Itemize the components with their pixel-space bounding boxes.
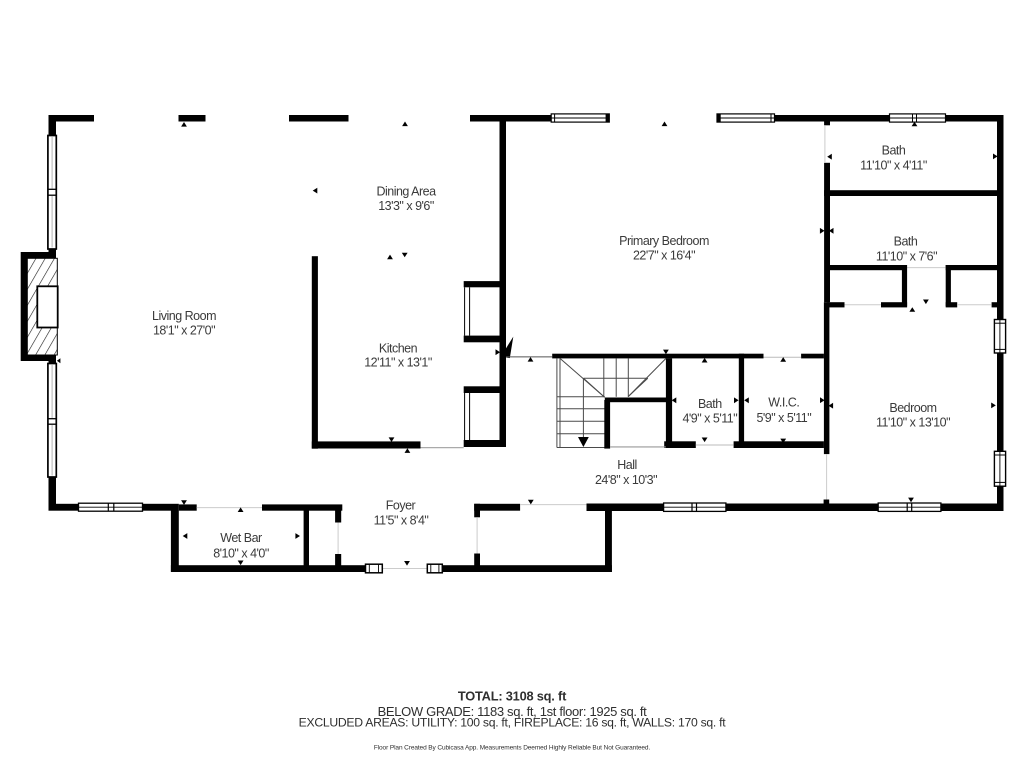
svg-text:Primary Bedroom: Primary Bedroom [619, 234, 709, 248]
svg-text:12'11" x 13'1": 12'11" x 13'1" [364, 356, 432, 370]
svg-text:24'8" x 10'3": 24'8" x 10'3" [595, 473, 657, 487]
svg-text:W.I.C.: W.I.C. [768, 396, 799, 410]
svg-text:13'3" x 9'6": 13'3" x 9'6" [378, 199, 434, 213]
svg-text:Kitchen: Kitchen [379, 342, 418, 356]
svg-text:Dining Area: Dining Area [376, 185, 436, 199]
svg-text:TOTAL: 3108 sq. ft: TOTAL: 3108 sq. ft [458, 689, 567, 704]
svg-text:Foyer: Foyer [386, 499, 416, 513]
svg-text:8'10" x 4'0": 8'10" x 4'0" [213, 546, 269, 560]
svg-text:22'7" x 16'4": 22'7" x 16'4" [633, 248, 695, 262]
svg-text:Floor Plan Created By Cubicasa: Floor Plan Created By Cubicasa App. Meas… [374, 745, 651, 752]
svg-text:11'10" x 13'10": 11'10" x 13'10" [876, 416, 950, 430]
svg-text:Living Room: Living Room [152, 309, 216, 323]
svg-text:EXCLUDED AREAS: UTILITY: 100 s: EXCLUDED AREAS: UTILITY: 100 sq. ft, FIR… [299, 716, 727, 730]
svg-text:11'5" x 8'4": 11'5" x 8'4" [374, 513, 429, 527]
svg-text:Bedroom: Bedroom [889, 401, 936, 415]
svg-text:Bath: Bath [882, 144, 906, 158]
svg-text:Hall: Hall [617, 458, 637, 472]
svg-text:Bath: Bath [894, 235, 918, 249]
svg-text:Wet Bar: Wet Bar [220, 531, 262, 545]
svg-text:18'1" x 27'0": 18'1" x 27'0" [153, 323, 215, 337]
svg-text:5'9" x 5'11": 5'9" x 5'11" [756, 411, 811, 425]
svg-text:11'10" x 7'6": 11'10" x 7'6" [876, 250, 937, 264]
svg-text:11'10" x 4'11": 11'10" x 4'11" [860, 159, 927, 173]
svg-text:Bath: Bath [698, 397, 722, 411]
svg-text:4'9" x 5'11": 4'9" x 5'11" [682, 412, 737, 426]
